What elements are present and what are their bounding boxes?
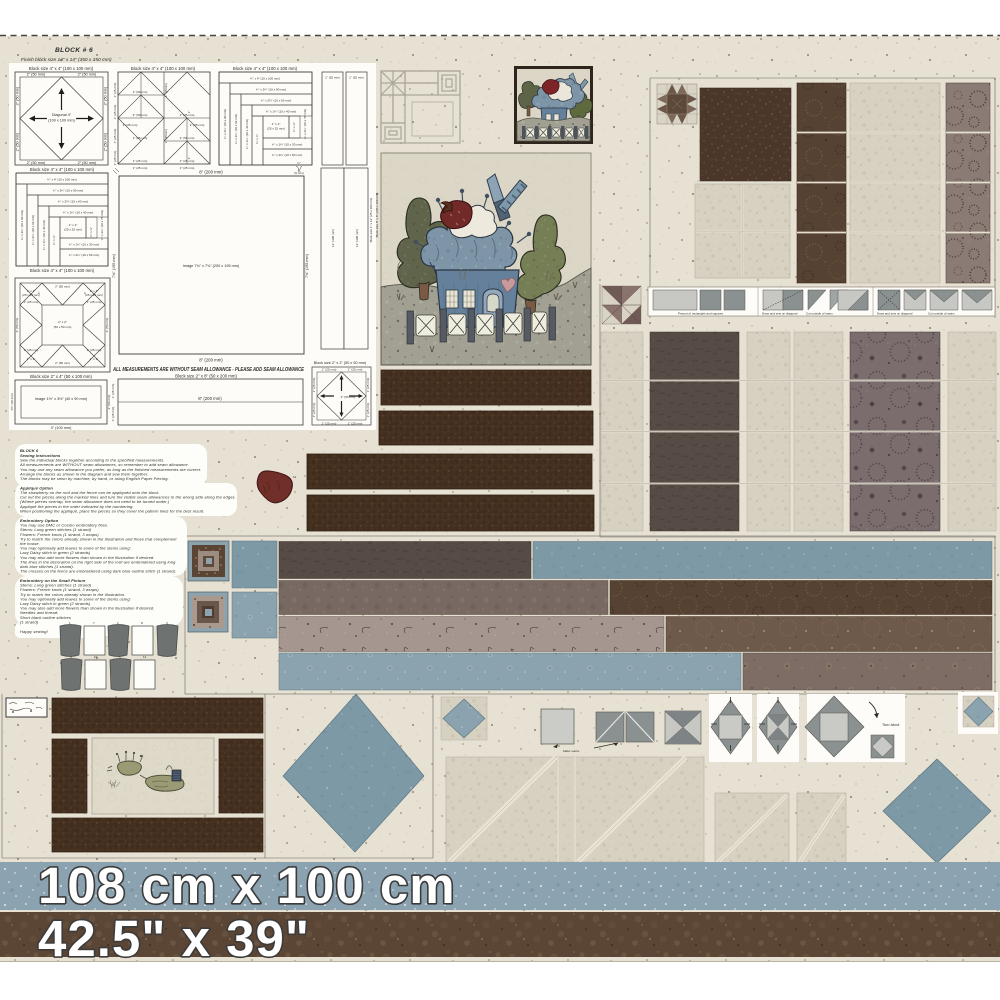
svg-text:1" (25 mm): 1" (25 mm) [325, 76, 340, 80]
svg-text:2" (50 mm): 2" (50 mm) [15, 318, 19, 333]
svg-text:2" (50 mm): 2" (50 mm) [180, 136, 195, 140]
svg-text:¾" x 3¾" (10 x 90 mm): ¾" x 3¾" (10 x 90 mm) [256, 88, 286, 92]
svg-text:Block size 4" x 4" (100 x 10: Block size 4" x 4" (100 x 100 mm) [30, 167, 95, 172]
svg-text:1" (25 mm): 1" (25 mm) [322, 368, 337, 372]
svg-text:1" x 1": 1" x 1" [69, 223, 78, 227]
svg-text:The crosses on the fence are e: The crosses on the fence are embroidered… [20, 569, 176, 574]
svg-text:2" (50 mm): 2" (50 mm) [78, 161, 97, 165]
svg-text:1": 1" [187, 111, 191, 114]
svg-text:42.5" x 39": 42.5" x 39" [38, 910, 310, 967]
svg-text:Presort of rectangles and squa: Presort of rectangles and squares [678, 312, 724, 316]
svg-text:2" (50 mm): 2" (50 mm) [104, 86, 108, 105]
svg-text:Block size 1" x 12" (25 x 30: Block size 1" x 12" (25 x 300 mm) [369, 198, 373, 243]
svg-text:ALL MEASUREMENTS ARE WITHOUT S: ALL MEASUREMENTS ARE WITHOUT SEAM ALLOWA… [112, 367, 305, 373]
svg-text:1" (25 mm): 1" (25 mm) [24, 300, 39, 304]
svg-text:BLOCK # 6: BLOCK # 6 [55, 47, 93, 54]
svg-text:Draw and sew on diagonal: Draw and sew on diagonal [877, 312, 913, 316]
svg-text:2" (50 mm): 2" (50 mm) [27, 73, 46, 77]
svg-text:1" (25 mm): 1" (25 mm) [113, 129, 117, 144]
svg-text:1" (25 mm): 1" (25 mm) [190, 123, 205, 127]
svg-text:¾" x 2¾" (10 x 50 mm): ¾" x 2¾" (10 x 50 mm) [69, 253, 99, 257]
svg-text:4" (100 mm): 4" (100 mm) [51, 426, 72, 430]
svg-text:2" (50 mm): 2" (50 mm) [341, 395, 356, 399]
svg-text:¾" x 2¾" (10 x 62 mm): ¾" x 2¾" (10 x 62 mm) [234, 114, 238, 144]
svg-text:1": 1" [37, 291, 41, 294]
svg-text:12" (300 mm): 12" (300 mm) [331, 229, 335, 247]
svg-text:1" (25 mm): 1" (25 mm) [133, 159, 148, 163]
svg-text:1" x 1": 1" x 1" [90, 357, 99, 361]
svg-text:2" (50 mm): 2" (50 mm) [27, 161, 46, 165]
svg-text:¾" x 4" (10 x 100 mm): ¾" x 4" (10 x 100 mm) [250, 77, 280, 81]
svg-text:Diagonal 4": Diagonal 4" [52, 113, 72, 117]
svg-text:Try to match the colors alread: Try to match the colors already shown in… [20, 536, 177, 541]
svg-text:¾" x ¾": ¾" x ¾" [292, 122, 296, 132]
svg-text:Block size 4" x 4" (100 x 10: Block size 4" x 4" (100 x 100 mm) [29, 66, 94, 71]
svg-text:¾" x 1¾" (10 x 40 mm): ¾" x 1¾" (10 x 40 mm) [42, 220, 46, 250]
svg-text:1" (25 mm): 1" (25 mm) [312, 403, 316, 418]
svg-text:2" (50 mm): 2" (50 mm) [104, 132, 108, 151]
svg-text:Image 7¾" x 7¾" (200 x 195 m: Image 7¾" x 7¾" (200 x 195 mm) [183, 264, 240, 268]
svg-text:8" (200 mm): 8" (200 mm) [199, 358, 223, 363]
svg-text:Draw and sew on diagonal: Draw and sew on diagonal [762, 312, 798, 316]
svg-text:1" (25 mm): 1" (25 mm) [113, 83, 117, 98]
svg-text:1": 1" [83, 291, 87, 294]
svg-text:1" (25 mm): 1" (25 mm) [180, 166, 195, 170]
svg-text:Finish block size 14" x 14" (: Finish block size 14" x 14" (350 x 350 m… [21, 57, 112, 63]
svg-text:1" (25 mm): 1" (25 mm) [349, 76, 364, 80]
svg-text:¾" x 3¾" (10 x 90 mm): ¾" x 3¾" (10 x 90 mm) [20, 210, 24, 240]
svg-text:2" (50 mm): 2" (50 mm) [78, 73, 97, 77]
svg-text:Happy sewing!: Happy sewing! [20, 629, 49, 634]
svg-text:(1 strand): (1 strand) [20, 619, 39, 624]
svg-text:1" (50 mm): 1" (50 mm) [133, 90, 148, 94]
svg-text:2" (50 mm): 2" (50 mm) [16, 86, 20, 105]
svg-text:(25 x 25 mm): (25 x 25 mm) [64, 228, 82, 232]
svg-text:¾" x 3¾" (10 x 90 mm): ¾" x 3¾" (10 x 90 mm) [223, 109, 227, 139]
svg-text:1" (25 mm): 1" (25 mm) [111, 407, 115, 422]
svg-text:The blocks may be sewn by mach: The blocks may be sewn by machine, by ha… [20, 476, 169, 481]
svg-text:1" (25 mm): 1" (25 mm) [113, 105, 117, 120]
svg-text:2" (50 mm): 2" (50 mm) [55, 285, 70, 289]
svg-text:7¾" (195 mm): 7¾" (195 mm) [112, 253, 116, 278]
svg-text:8" (200 mm): 8" (200 mm) [199, 170, 223, 175]
svg-text:¾" x ¾": ¾" x ¾" [255, 134, 259, 144]
svg-text:1" (25 mm): 1" (25 mm) [133, 136, 148, 140]
svg-text:(25 x 25 mm): (25 x 25 mm) [267, 127, 285, 131]
svg-text:¾" x 2½" (10 x 60 mm): ¾" x 2½" (10 x 60 mm) [261, 99, 291, 103]
svg-text:1" (25 mm): 1" (25 mm) [366, 378, 370, 393]
svg-text:1" (25 mm): 1" (25 mm) [123, 123, 138, 127]
svg-text:2" (50 mm): 2" (50 mm) [16, 132, 20, 151]
svg-text:1" x 1": 1" x 1" [27, 357, 36, 361]
svg-text:1" (25mm): 1" (25mm) [164, 83, 168, 97]
svg-text:12: 12 [293, 475, 297, 479]
svg-text:¾" x 1¾" (10 x 40 mm): ¾" x 1¾" (10 x 40 mm) [63, 211, 93, 215]
svg-text:2" (50 mm): 2" (50 mm) [55, 361, 70, 365]
svg-text:2" (50 mm): 2" (50 mm) [133, 113, 148, 117]
svg-text:¾" x ¾": ¾" x ¾" [89, 227, 93, 237]
svg-text:1" x 1": 1" x 1" [272, 122, 281, 126]
svg-text:Block size 4" x 4" (100 x 10: Block size 4" x 4" (100 x 100 mm) [131, 66, 196, 71]
svg-text:(100 x 100 mm): (100 x 100 mm) [48, 119, 75, 123]
svg-text:1" (25 mm): 1" (25 mm) [87, 348, 102, 352]
svg-text:(50 x 50 mm): (50 x 50 mm) [54, 325, 72, 329]
svg-text:1" (25 mm): 1" (25 mm) [322, 422, 337, 426]
svg-text:Make marks: Make marks [563, 749, 580, 753]
svg-text:12" (300 mm): 12" (300 mm) [355, 229, 359, 247]
svg-text:¾" x 1¾" (10 x 30 mm): ¾" x 1¾" (10 x 30 mm) [69, 243, 99, 247]
svg-text:When positioning the appliqué,: When positioning the appliqué, place the… [20, 508, 204, 513]
svg-text:108 cm x 100 cm: 108 cm x 100 cm [38, 857, 456, 914]
svg-text:Block size 2" x 4" (50 x 100: Block size 2" x 4" (50 x 100 mm) [30, 374, 92, 379]
svg-text:1" (25 mm): 1" (25 mm) [113, 151, 117, 166]
svg-text:(5 mm): (5 mm) [294, 171, 304, 175]
svg-text:Turn block: Turn block [882, 723, 901, 727]
svg-text:1½" (40 mm): 1½" (40 mm) [10, 393, 14, 410]
svg-text:¾" x 2¾" (10 x 70 mm): ¾" x 2¾" (10 x 70 mm) [303, 109, 307, 139]
svg-text:8" (200 mm): 8" (200 mm) [198, 396, 222, 401]
svg-text:¾" x 4" (10 x 100 mm): ¾" x 4" (10 x 100 mm) [47, 178, 77, 182]
svg-text:2" (50 mm): 2" (50 mm) [105, 318, 109, 333]
svg-text:Cut outside of seam: Cut outside of seam [928, 312, 955, 316]
svg-text:1" (25mm): 1" (25mm) [164, 129, 168, 143]
svg-text:¾" x 1¾" (10 x 30 mm): ¾" x 1¾" (10 x 30 mm) [272, 143, 302, 147]
svg-text:¾" x 1¾" (10 x 40 mm): ¾" x 1¾" (10 x 40 mm) [245, 119, 249, 149]
svg-text:Block size 4" x 4" (100 x 10: Block size 4" x 4" (100 x 100 mm) [233, 66, 298, 71]
svg-text:¾" x 2¾" (10 x 50 mm): ¾" x 2¾" (10 x 50 mm) [272, 153, 302, 157]
svg-text:1" (25 mm): 1" (25 mm) [366, 403, 370, 418]
svg-text:¾" x 2¾" (10 x 62 mm): ¾" x 2¾" (10 x 62 mm) [31, 215, 35, 245]
svg-text:¾" x 1¾" (10 x 40 mm): ¾" x 1¾" (10 x 40 mm) [266, 110, 296, 114]
svg-text:2" x 2": 2" x 2" [58, 320, 67, 324]
svg-text:1" (25 mm): 1" (25 mm) [312, 378, 316, 393]
svg-text:1" (25 mm): 1" (25 mm) [24, 348, 39, 352]
svg-text:Block size 8" x 8" (200 x 20: Block size 8" x 8" (200 x 200 mm) [375, 193, 379, 238]
svg-text:1" (25 mm): 1" (25 mm) [348, 368, 363, 372]
svg-text:(25 x 25 mm): (25 x 25 mm) [85, 293, 103, 297]
svg-text:1" (25 mm): 1" (25 mm) [348, 422, 363, 426]
svg-text:1": 1" [187, 157, 191, 160]
svg-text:Block size 2" x 8" (50 x 200: Block size 2" x 8" (50 x 200 mm) [175, 374, 237, 379]
svg-text:11: 11 [143, 655, 146, 659]
svg-text:1" (25 mm): 1" (25 mm) [133, 166, 148, 170]
svg-text:Block size 2" x 2" (50 x 50 m: Block size 2" x 2" (50 x 50 mm) [314, 361, 367, 365]
svg-text:Image 1½" x 3½" (40 x 90 mm): Image 1½" x 3½" (40 x 90 mm) [35, 397, 88, 401]
svg-text:¾" x 2¾" (10 x 70 mm): ¾" x 2¾" (10 x 70 mm) [100, 210, 104, 240]
svg-text:¾" x 3¾" (10 x 90 mm): ¾" x 3¾" (10 x 90 mm) [53, 189, 83, 193]
svg-text:1" (25 mm): 1" (25 mm) [87, 300, 102, 304]
svg-text:¾" x 2½" (10 x 60 mm): ¾" x 2½" (10 x 60 mm) [58, 200, 88, 204]
svg-text:10: 10 [94, 655, 98, 659]
svg-text:1" (25 mm): 1" (25 mm) [111, 384, 115, 399]
svg-text:7¾" (195 mm): 7¾" (195 mm) [305, 253, 309, 278]
svg-text:¼": ¼" [297, 161, 301, 165]
svg-text:Block size 4" x 4" (100 x 10: Block size 4" x 4" (100 x 100 mm) [30, 268, 95, 273]
svg-text:¾" x ¾": ¾" x ¾" [52, 235, 56, 245]
svg-text:Cut outside of seam: Cut outside of seam [806, 312, 833, 316]
